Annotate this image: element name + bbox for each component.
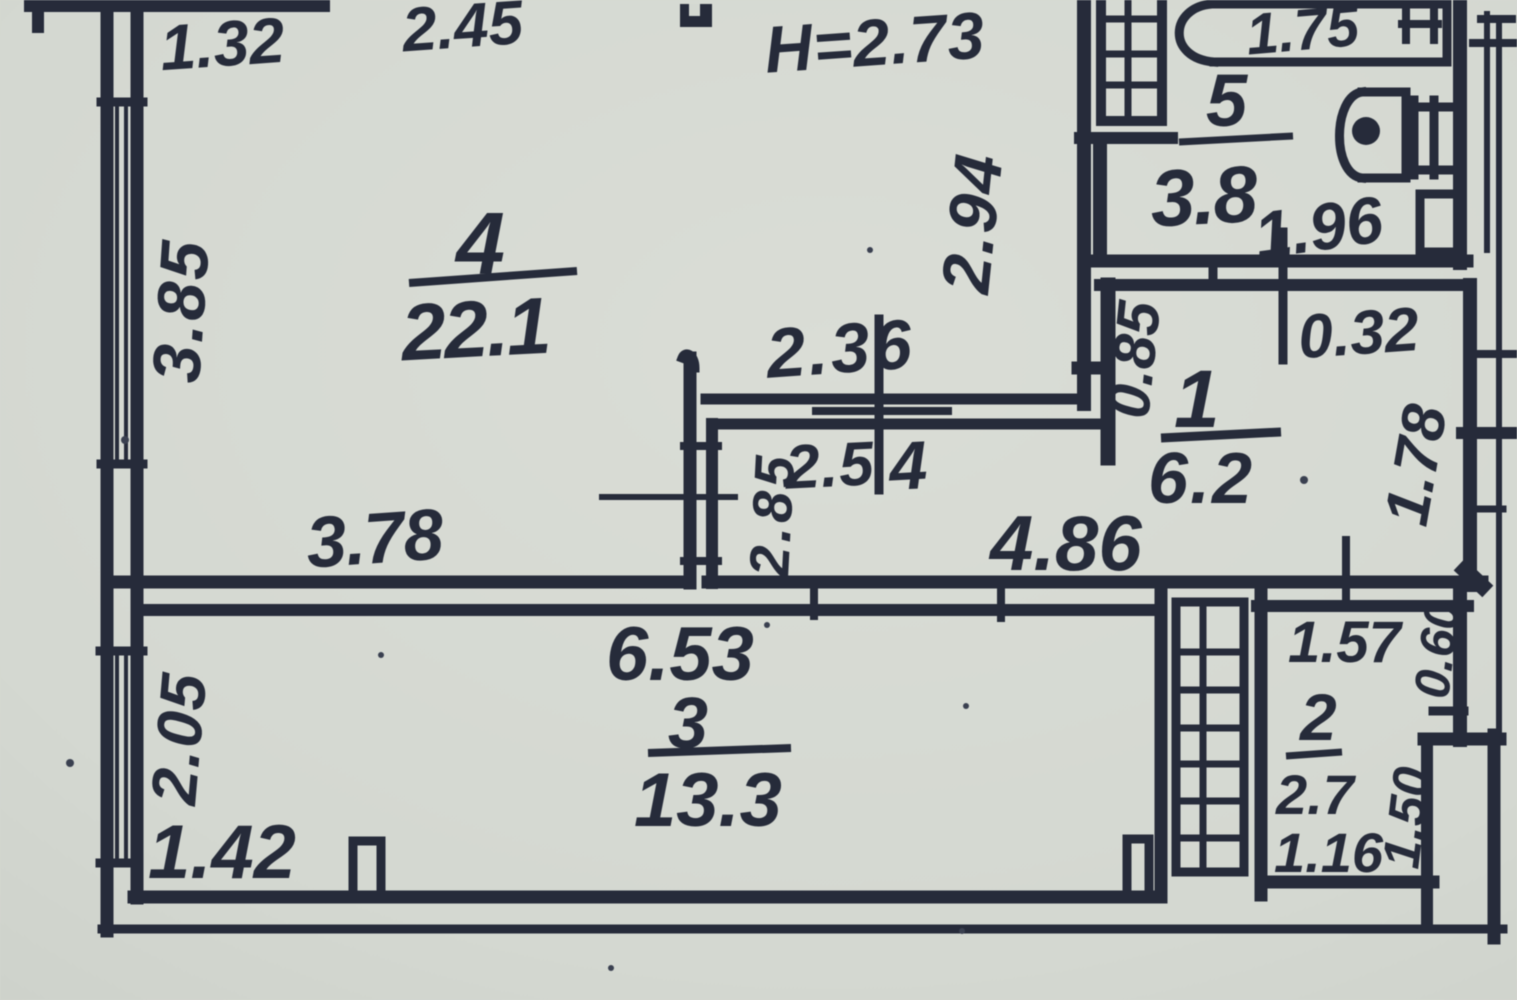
svg-text:22.1: 22.1 [397,281,551,378]
svg-text:1.57: 1.57 [1288,610,1404,675]
svg-text:0.85: 0.85 [1094,297,1173,422]
svg-text:2: 2 [1298,680,1337,754]
svg-text:2.36: 2.36 [762,305,917,393]
svg-text:4: 4 [885,427,929,505]
svg-text:6.2: 6.2 [1148,439,1254,519]
svg-text:3.85: 3.85 [138,236,224,385]
svg-text:2.7: 2.7 [1275,763,1357,826]
svg-text:2.94: 2.94 [927,149,1017,299]
svg-text:1.50: 1.50 [1372,764,1442,872]
svg-text:5: 5 [1206,59,1249,142]
svg-text:4.86: 4.86 [988,499,1142,587]
svg-text:3.8: 3.8 [1148,149,1260,244]
svg-text:2.45: 2.45 [399,0,527,65]
svg-text:0.60: 0.60 [1403,598,1470,702]
svg-text:0.32: 0.32 [1296,295,1421,372]
svg-text:2.05: 2.05 [137,669,220,808]
svg-text:1.42: 1.42 [148,810,296,895]
svg-text:13.3: 13.3 [634,758,782,843]
svg-text:1.75: 1.75 [1243,0,1362,68]
svg-text:1.32: 1.32 [158,4,287,85]
svg-text:3.78: 3.78 [304,494,446,583]
svg-text:2.85: 2.85 [737,451,807,580]
svg-text:1.16: 1.16 [1274,821,1384,884]
